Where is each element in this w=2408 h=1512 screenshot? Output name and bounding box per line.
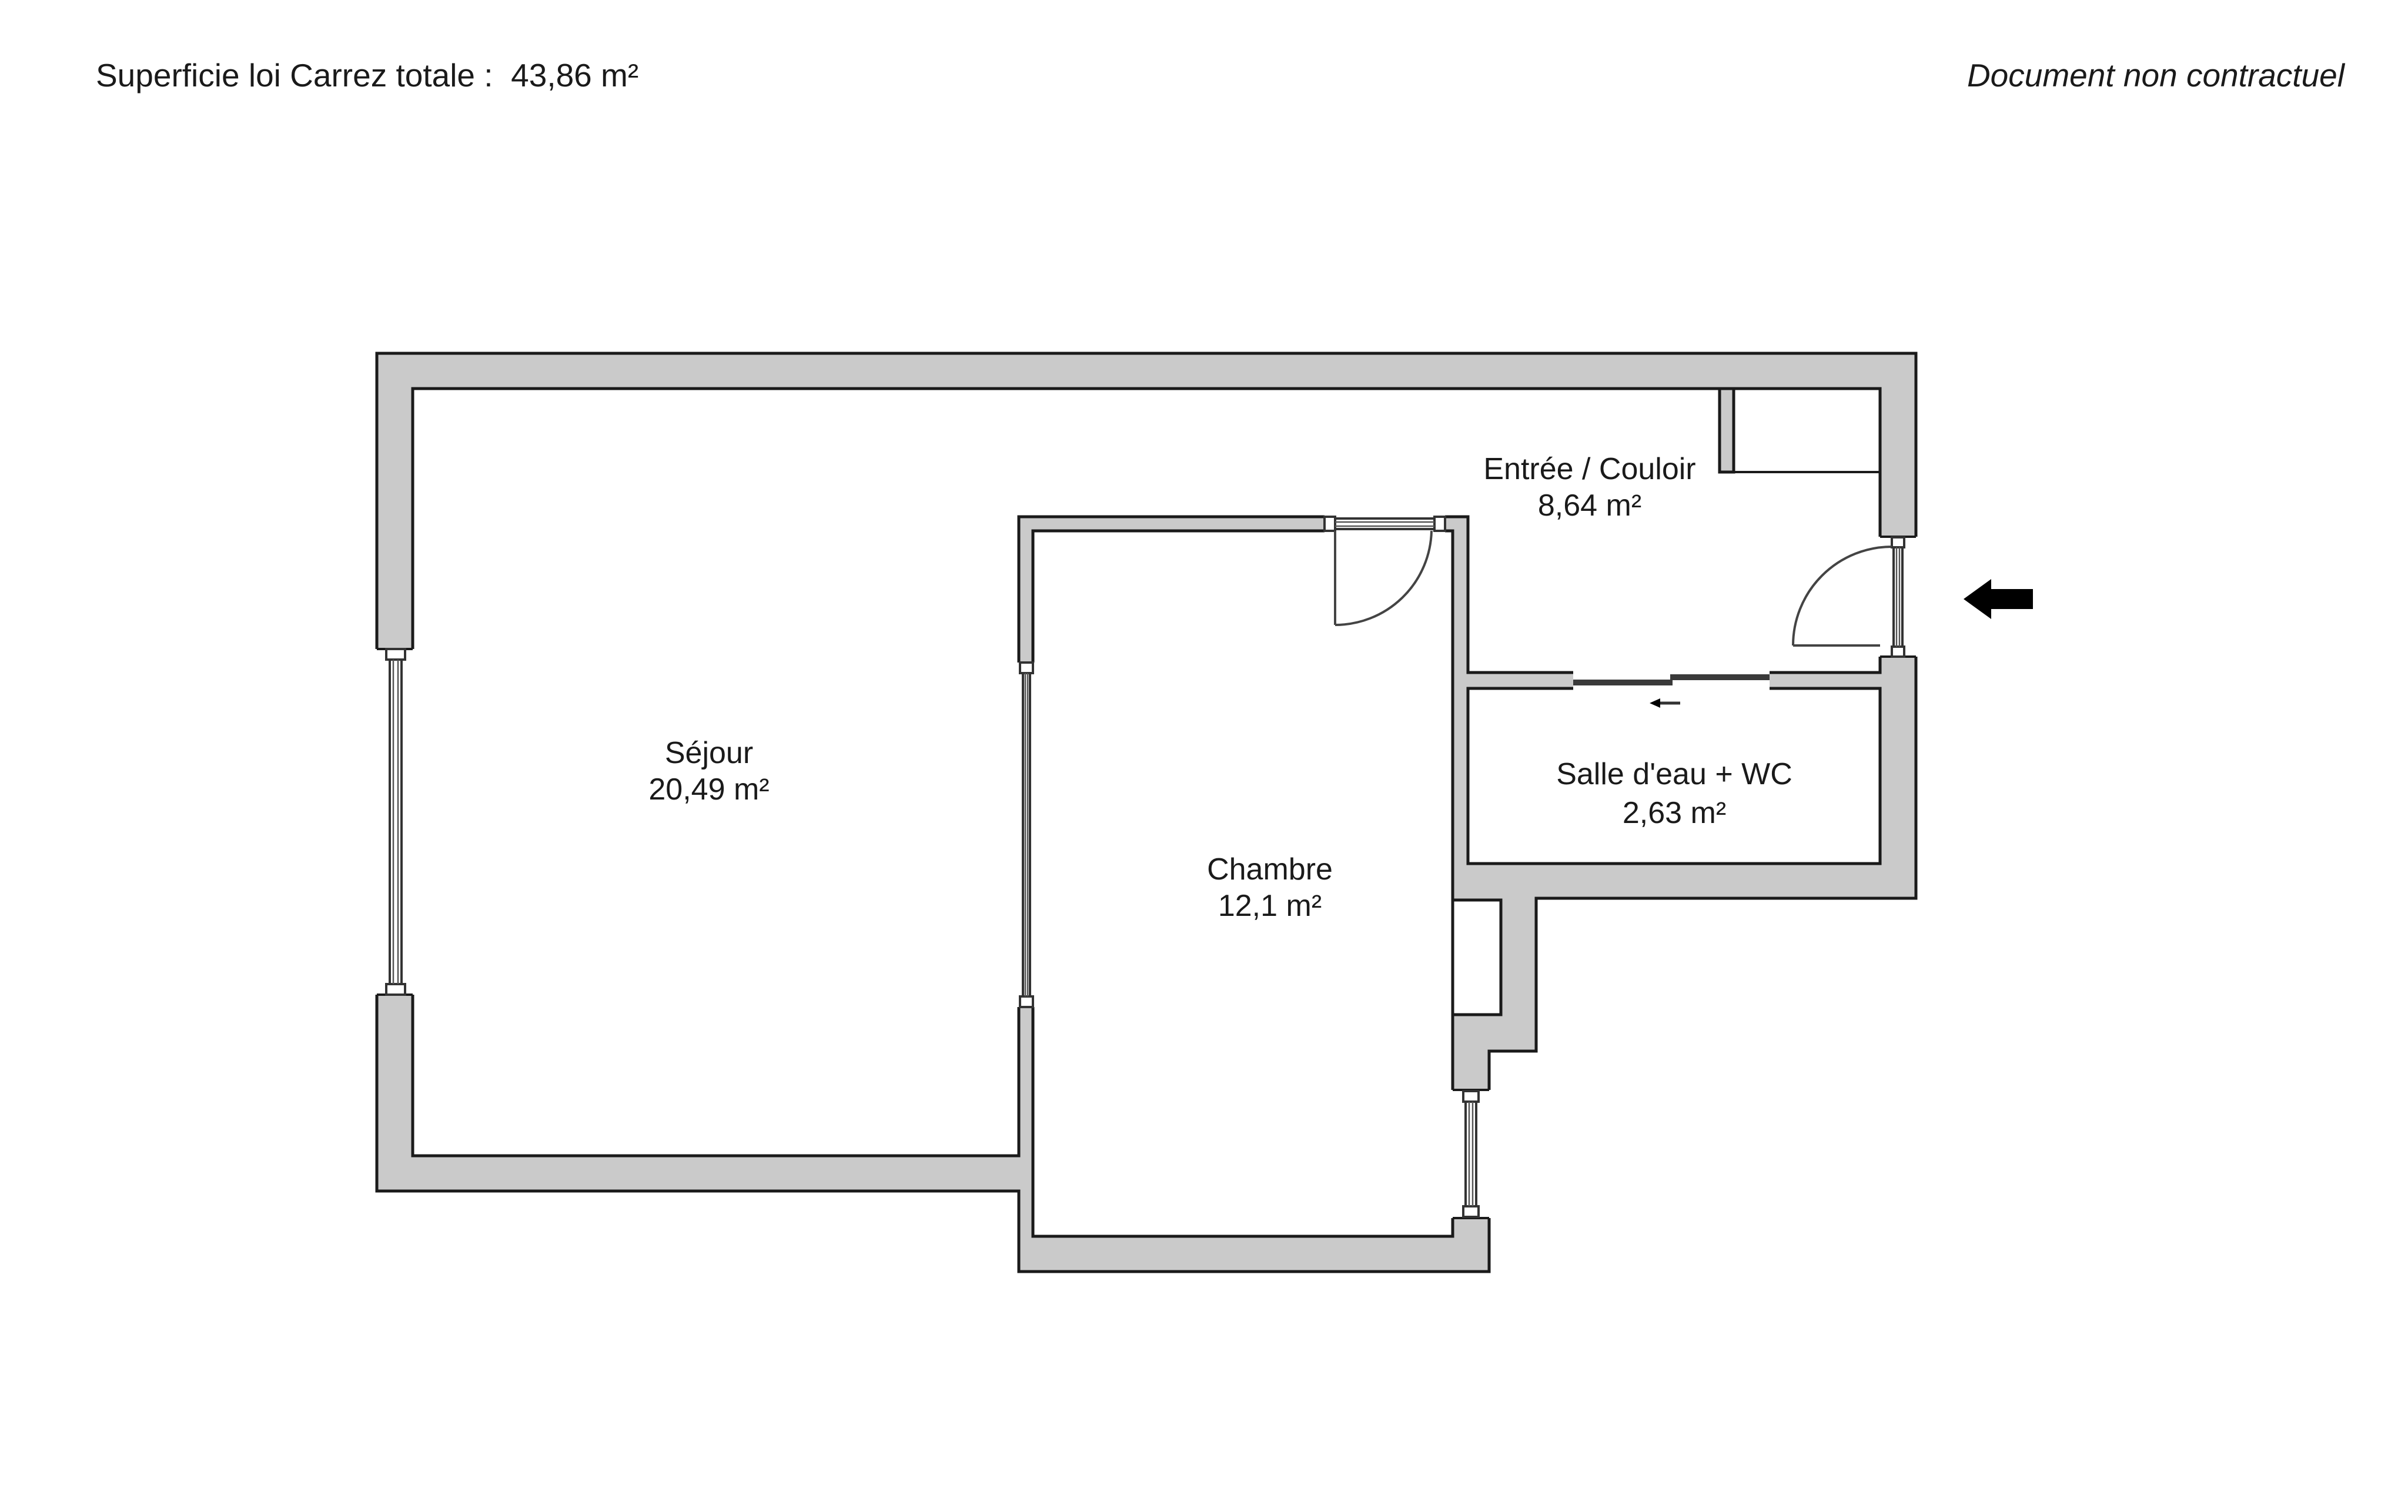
window-cap-icon bbox=[386, 649, 405, 660]
room-area: 20,49 m² bbox=[648, 772, 769, 807]
floor-plan-page: Superficie loi Carrez totale : 43,86 m² … bbox=[0, 0, 2408, 1512]
room-name: Entrée / Couloir bbox=[1483, 452, 1695, 486]
sejour-window bbox=[374, 649, 415, 995]
window-cap-icon bbox=[1463, 1206, 1479, 1217]
room-name: Séjour bbox=[665, 736, 753, 770]
window-cap-icon bbox=[386, 984, 405, 995]
window-cap-icon bbox=[1020, 663, 1033, 673]
window-cap-icon bbox=[1463, 1091, 1479, 1102]
floor-plan: Superficie loi Carrez totale : 43,86 m² … bbox=[0, 0, 2408, 1512]
chambre-interior-window bbox=[1016, 663, 1035, 1007]
door-jamb-icon bbox=[1892, 647, 1904, 657]
room-name: Chambre bbox=[1207, 852, 1333, 887]
duct-shaft bbox=[1453, 900, 1501, 1015]
door-jamb-icon bbox=[1325, 517, 1335, 531]
total-area-title: Superficie loi Carrez totale : 43,86 m² bbox=[96, 57, 638, 93]
window-cap-icon bbox=[1020, 996, 1033, 1007]
chambre-right-window bbox=[1450, 1090, 1492, 1218]
room-name: Salle d'eau + WC bbox=[1556, 757, 1792, 791]
room-area: 8,64 m² bbox=[1538, 489, 1641, 523]
disclaimer-text: Document non contractuel bbox=[1967, 57, 2346, 93]
closet-niche-stub-wall bbox=[1720, 389, 1734, 472]
door-jamb-icon bbox=[1892, 537, 1904, 547]
room-area: 2,63 m² bbox=[1623, 796, 1726, 830]
room-area: 12,1 m² bbox=[1218, 889, 1322, 923]
door-jamb-icon bbox=[1434, 517, 1445, 531]
